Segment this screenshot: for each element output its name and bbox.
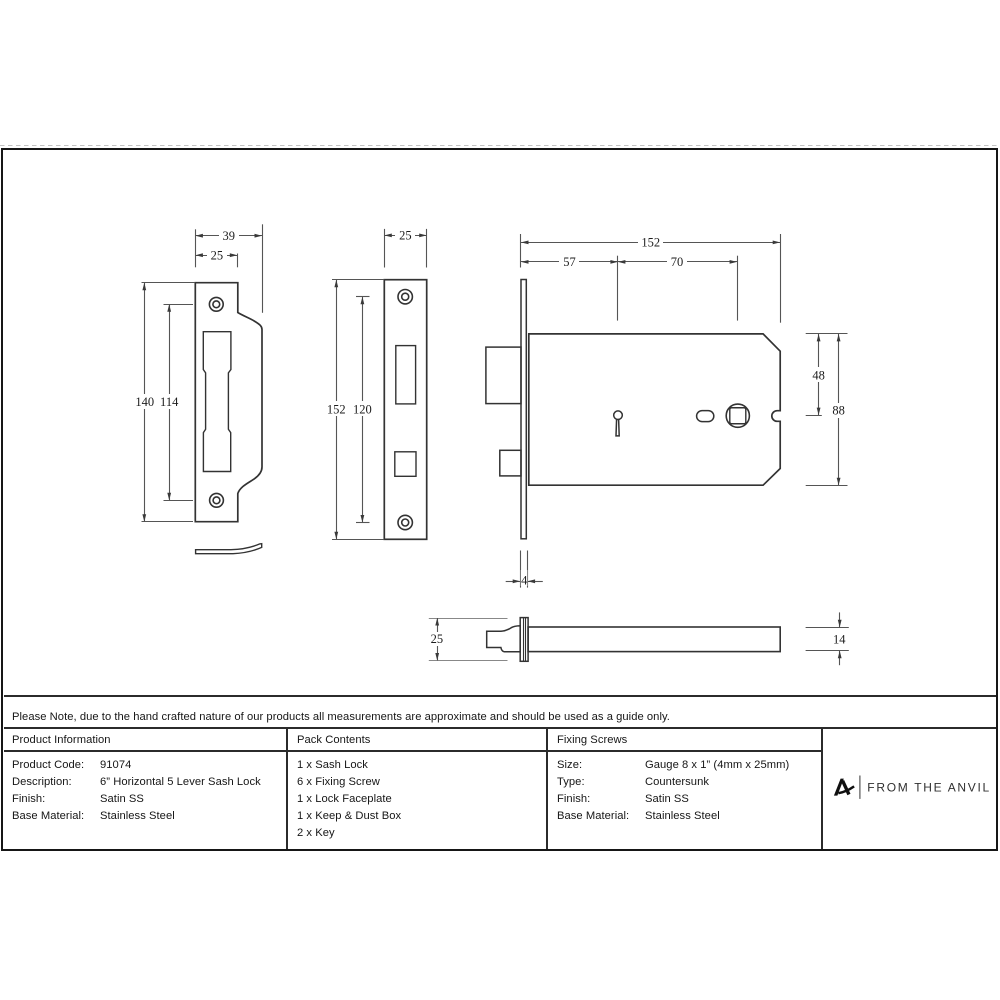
svg-text:57: 57: [563, 255, 576, 269]
svg-text:48: 48: [812, 368, 825, 382]
svg-text:114: 114: [160, 395, 179, 409]
svg-text:FROM THE ANVIL: FROM THE ANVIL: [867, 780, 991, 794]
svg-text:25: 25: [211, 249, 224, 263]
svg-text:88: 88: [832, 404, 845, 418]
svg-text:152: 152: [327, 403, 346, 417]
svg-text:70: 70: [671, 255, 684, 269]
svg-text:39: 39: [223, 229, 236, 243]
svg-text:140: 140: [135, 395, 154, 409]
svg-text:14: 14: [833, 633, 846, 647]
svg-text:25: 25: [399, 229, 412, 243]
svg-text:4: 4: [521, 574, 528, 588]
svg-text:120: 120: [353, 403, 372, 417]
svg-text:152: 152: [641, 236, 660, 250]
svg-text:25: 25: [431, 632, 444, 646]
